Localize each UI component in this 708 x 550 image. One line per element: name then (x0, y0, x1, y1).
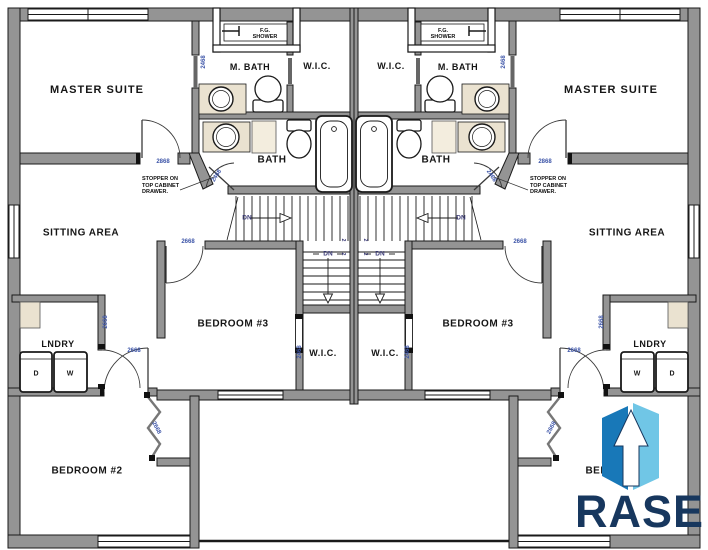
stopper-note-line3: DRAWER. (142, 189, 179, 196)
door-size-lndry-jamb-right: 2668 (599, 315, 605, 328)
door-size-mbath-left: 2468 (201, 55, 207, 68)
shower-label-left: F.G. SHOWER (253, 28, 278, 40)
dryer-label-left: D (33, 371, 38, 378)
room-label-wic-top-right: W.I.C. (377, 61, 405, 71)
stairs-dn-lower-right: DN (375, 251, 384, 258)
room-label-master-suite-right: MASTER SUITE (564, 84, 658, 96)
room-label-bath-right: BATH (421, 155, 450, 166)
room-label-lndry-left: LNDRY (41, 339, 74, 349)
room-label-master-suite-left: MASTER SUITE (50, 84, 144, 96)
stopper-note-line1-right: STOPPER ON (530, 176, 567, 183)
stair-riser-num-left-1: 2 (340, 239, 346, 242)
room-label-bath-left: BATH (257, 155, 286, 166)
stairs-dn-upper-left: DN (242, 215, 251, 222)
door-size-lndry-jamb-left: 2668 (103, 315, 109, 328)
stopper-note-line1: STOPPER ON (142, 176, 179, 183)
room-label-wic-top-left: W.I.C. (303, 61, 331, 71)
rase-logo-icon (601, 401, 663, 495)
room-label-bedroom3-right: BEDROOM #3 (442, 319, 513, 330)
door-size-wic-left: 2468 (297, 345, 303, 358)
shower-label-line2-right: SHOWER (431, 34, 456, 40)
door-jambs (98, 153, 140, 396)
room-label-sitting-right: SITTING AREA (589, 228, 665, 239)
room-label-sitting-left: SITTING AREA (43, 228, 119, 239)
room-label-wic-bottom-right: W.I.C. (371, 348, 399, 358)
stair-riser-num-right-2: 2 (362, 253, 368, 256)
shower-label-right: F.G. SHOWER (431, 28, 456, 40)
room-label-bedroom2-left: BEDROOM #2 (51, 466, 122, 477)
stopper-note-left: STOPPER ON TOP CABINET DRAWER. (142, 176, 179, 196)
door-size-lndry-right: 2668 (567, 348, 580, 354)
washer-label-left: W (67, 371, 74, 378)
stair-riser-num-left-2: 2 (340, 253, 346, 256)
door-size-lndry-left: 2668 (127, 348, 140, 354)
stopper-note-line3-right: DRAWER. (530, 189, 567, 196)
door-size-mbath-right: 2468 (501, 55, 507, 68)
room-label-bedroom3-left: BEDROOM #3 (197, 319, 268, 330)
room-label-mbath-right: M. BATH (438, 62, 478, 72)
door-size-bedroom3-right: 2668 (513, 239, 526, 245)
stopper-note-right: STOPPER ON TOP CABINET DRAWER. (530, 176, 567, 196)
room-label-wic-bottom-left: W.I.C. (309, 348, 337, 358)
master-bath-fixtures (199, 76, 283, 114)
room-label-lndry-right: LNDRY (633, 339, 666, 349)
door-size-master-right: 2868 (538, 159, 551, 165)
stairs-dn-upper-right: DN (456, 215, 465, 222)
door-size-bedroom3-left: 2668 (181, 239, 194, 245)
floorplan-page: MASTER SUITE M. BATH W.I.C. F.G. SHOWER … (0, 0, 708, 550)
door-size-master-left: 2868 (156, 159, 169, 165)
stair-riser-num-right-1: 2 (362, 239, 368, 242)
room-label-mbath-left: M. BATH (230, 62, 270, 72)
dryer-label-right: D (669, 371, 674, 378)
washer-label-right: W (634, 371, 641, 378)
rase-logo-wordmark: RASE (560, 489, 704, 534)
shower-label-line2: SHOWER (253, 34, 278, 40)
door-size-wic-right: 2468 (405, 345, 411, 358)
stairs-dn-lower-left: DN (323, 251, 332, 258)
